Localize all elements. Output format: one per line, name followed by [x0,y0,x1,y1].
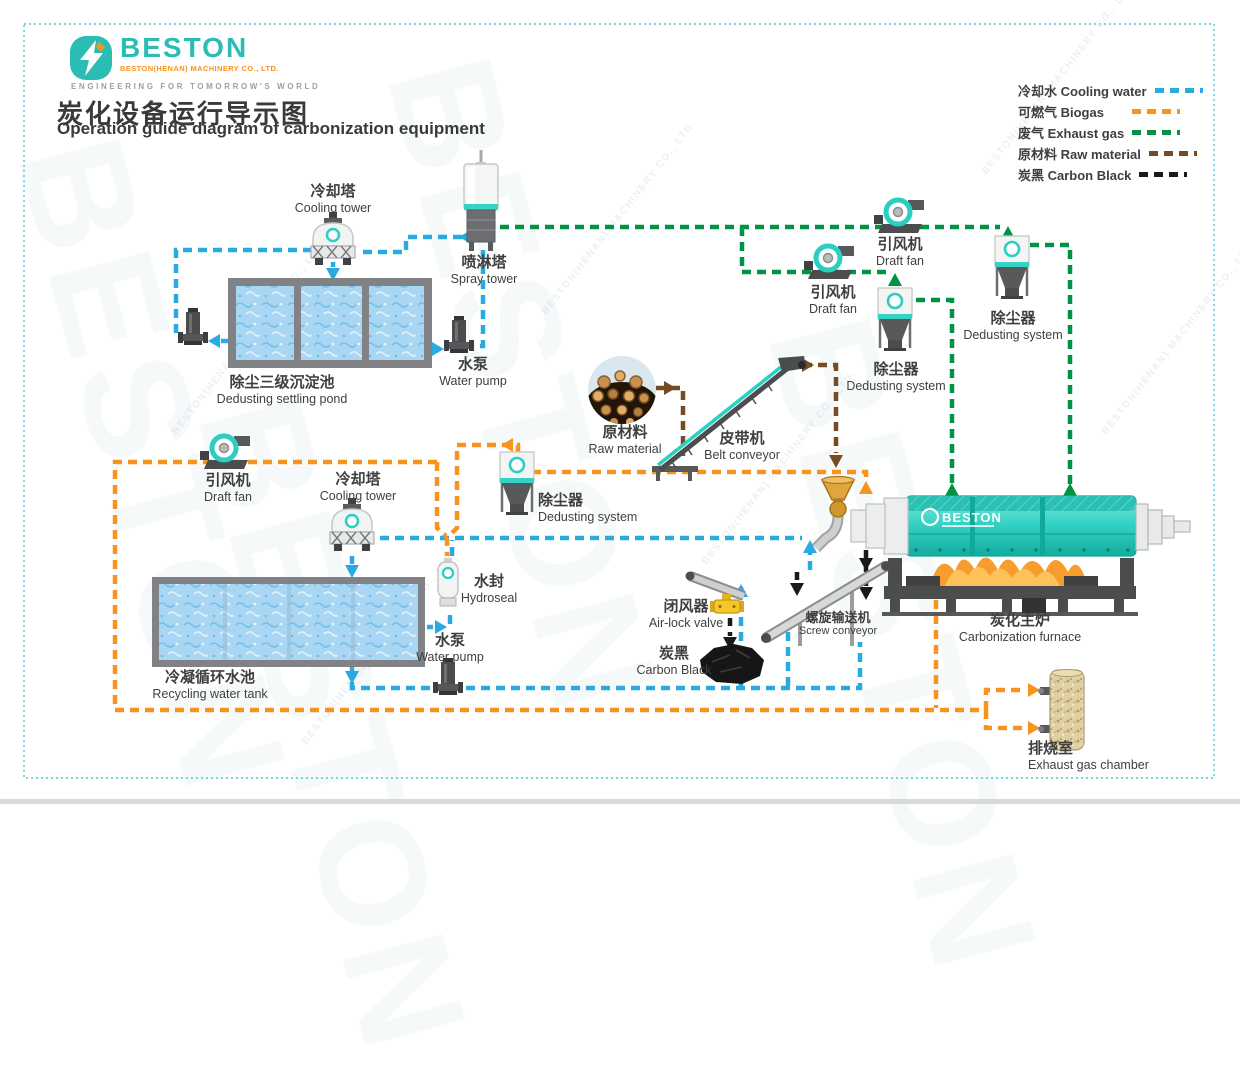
water-pump-left-icon [178,308,208,345]
label-spray-tower: 喷淋塔 Spray tower [451,254,518,286]
label-dedusting-right: 除尘器 Dedusting system [963,310,1062,342]
recycling-water-tank [152,577,425,667]
brand-tagline: ENGINEERING FOR TOMORROW'S WORLD [71,82,320,91]
brand-company: BESTON(HENAN) MACHINERY CO., LTD. [120,64,279,73]
label-dedusting-center: 除尘器 Dedusting system [538,492,637,524]
furnace-brand-text: BESTON [942,510,1002,525]
dedusting-system-mid-icon [878,288,912,351]
beston-logo: BESTON BESTON(HENAN) MACHINERY CO., LTD. [70,34,279,82]
label-furnace: 炭化主炉 Carbonization furnace [959,612,1081,644]
legend-item-cooling-water: 冷却水 Cooling water [1018,80,1180,101]
legend: 冷却水 Cooling water 可燃气 Biogas 废气 Exhaust … [1018,80,1180,185]
label-dedusting-mid: 除尘器 Dedusting system [846,361,945,393]
dedusting-settling-pond [228,278,432,368]
page-title-en: Operation guide diagram of carbonization… [57,119,485,139]
cooling-tower-1-icon [311,212,355,265]
hydroseal-icon [438,558,458,606]
dedusting-system-right-icon [995,236,1029,299]
label-water-pump-top: 水泵 Water pump [439,356,507,388]
label-carbon-black: 炭黑 Carbon Black [636,645,711,677]
label-screw-conveyor: 螺旋输送机 Screw conveyor [799,610,877,638]
label-draft-fan-3: 引风机 Draft fan [204,472,252,504]
legend-item-raw-material: 原材料 Raw material [1018,143,1180,164]
brand-name: BESTON [120,34,279,62]
draft-fan-1-icon [874,200,924,233]
spray-tower-icon [464,150,498,251]
label-cooling-tower-2: 冷却塔 Cooling tower [320,471,396,503]
legend-dash-cooling-water [1155,88,1203,93]
label-belt-conveyor: 皮带机 Belt conveyor [704,430,780,462]
legend-dash-biogas [1132,109,1180,114]
label-settling-pond: 除尘三级沉淀池 Dedusting settling pond [217,374,348,406]
label-draft-fan-1: 引风机 Draft fan [876,236,924,268]
legend-dash-raw-material [1149,151,1197,156]
cooling-tower-2-icon [330,498,374,551]
label-raw-material: 原材料 Raw material [589,424,662,456]
label-hydroseal: 水封 Hydroseal [461,573,517,605]
legend-item-exhaust-gas: 废气 Exhaust gas [1018,122,1180,143]
carbonization-furnace-icon: BESTON [816,477,1190,617]
legend-dash-carbon-black [1139,172,1187,177]
label-water-pump-bottom: 水泵 Water pump [416,632,484,664]
water-pump-top-icon [444,316,474,353]
bottom-edge-strip [0,799,1240,804]
label-air-lock-valve: 闭风器 Air-lock valve [649,598,723,630]
label-cooling-tower-1: 冷却塔 Cooling tower [295,183,371,215]
feed-hopper-icon [822,477,854,518]
label-recycling-tank: 冷凝循环水池 Recycling water tank [152,669,267,701]
label-exhaust-chamber: 排烧室 Exhaust gas chamber [1028,740,1149,772]
draft-fan-2-icon [804,246,854,279]
legend-dash-exhaust-gas [1132,130,1180,135]
raw-material-icon [586,356,658,426]
label-draft-fan-2: 引风机 Draft fan [809,284,857,316]
draft-fan-3-icon [200,436,250,469]
beston-logo-icon [70,34,112,82]
dedusting-system-center-icon [500,452,534,515]
legend-item-carbon-black: 炭黑 Carbon Black [1018,164,1180,185]
legend-item-biogas: 可燃气 Biogas [1018,101,1180,122]
exhaust-gas-chamber-icon [1038,670,1084,751]
